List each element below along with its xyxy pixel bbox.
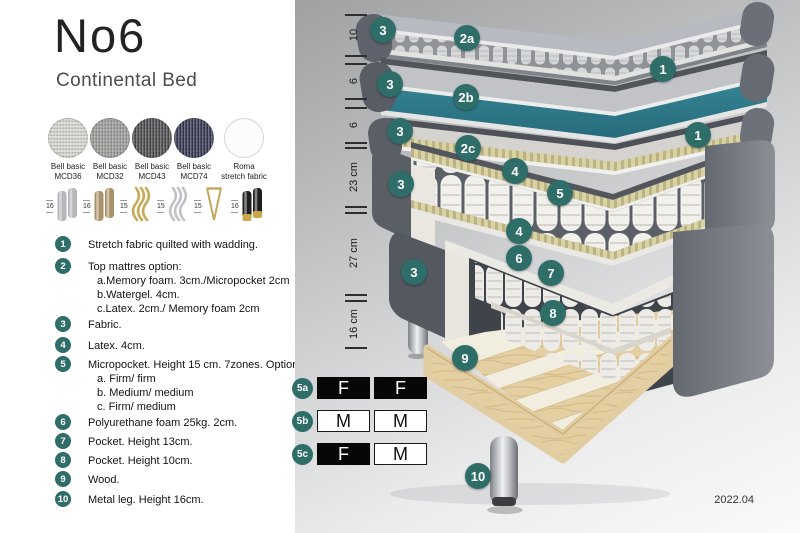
legend-item-number: 3 [55, 316, 71, 332]
legend-item: 2Top mattres option:a.Memory foam. 3cm./… [55, 258, 290, 316]
ruler-segment-label: 10 [348, 28, 360, 40]
firmness-row-badge: 5a [292, 378, 313, 399]
legend-item-text: Wood. [88, 471, 120, 487]
legend-sub-item: c.Latex. 2cm./ Memory foam 2cm [97, 302, 290, 316]
diagram-badge: 2c [455, 135, 481, 161]
info-panel: No6 Continental Bed Bell basicMCD36Bell … [0, 0, 295, 533]
legend-item-text: Polyurethane foam 25kg. 2cm. [88, 414, 237, 430]
ruler-tick [345, 63, 367, 65]
legend-item-title: Wood. [88, 473, 120, 487]
firmness-row: 5aFF [292, 377, 427, 399]
legend-item-title: Polyurethane foam 25kg. 2cm. [88, 416, 237, 430]
legend-item: 10Metal leg. Height 16cm. [55, 491, 204, 507]
firmness-cell: M [374, 443, 427, 465]
legend-item: 5Micropocket. Height 15 cm. 7zones. Opti… [55, 356, 301, 414]
ruler-tick [345, 55, 367, 57]
ruler-tick [345, 294, 367, 296]
legend-item: 1Stretch fabric quilted with wadding. [55, 236, 258, 252]
diagram-badge: 2a [454, 25, 480, 51]
ruler-tick [345, 347, 367, 349]
version-label: 2022.04 [714, 494, 754, 506]
firmness-row-badge: 5c [292, 444, 313, 465]
ruler-tick [345, 107, 367, 109]
diagram-badge: 6 [506, 245, 532, 271]
firmness-cell: F [374, 377, 427, 399]
diagram-badge: 3 [388, 171, 414, 197]
legend-item-number: 2 [55, 258, 71, 274]
legend-item-number: 4 [55, 337, 71, 353]
diagram-badge: 2b [453, 84, 479, 110]
legend-item-number: 6 [55, 414, 71, 430]
legend-item-title: Fabric. [88, 318, 122, 332]
box-spring [389, 224, 774, 505]
firmness-cell: F [317, 443, 370, 465]
legend-sub-item: a.Memory foam. 3cm./Micropocket 2cm [97, 274, 290, 288]
diagram-badge: 3 [387, 118, 413, 144]
legend-item-number: 9 [55, 471, 71, 487]
ruler-tick [345, 300, 367, 302]
ruler-tick [345, 98, 367, 100]
legend-item-title: Latex. 4cm. [88, 339, 145, 353]
legend-item-number: 1 [55, 236, 71, 252]
ruler-segment-label: 16 cm [348, 309, 360, 339]
ruler-segment-label: 23 cm [348, 162, 360, 192]
legend-item-text: Micropocket. Height 15 cm. 7zones. Optio… [88, 356, 301, 414]
legend-item: 9Wood. [55, 471, 120, 487]
legend-item: 7Pocket. Height 13cm. [55, 433, 193, 449]
diagram-badge: 5 [547, 180, 573, 206]
legend-item-number: 8 [55, 452, 71, 468]
legend-sub-item: c. Firm/ medium [97, 400, 301, 414]
legend-item-number: 7 [55, 433, 71, 449]
ruler-tick [345, 206, 367, 208]
legend-item: 4Latex. 4cm. [55, 337, 145, 353]
ruler-tick [345, 142, 367, 144]
diagram-badge: 4 [506, 218, 532, 244]
legend-item: 8Pocket. Height 10cm. [55, 452, 193, 468]
diagram-badge: 1 [685, 122, 711, 148]
legend-item-text: Metal leg. Height 16cm. [88, 491, 204, 507]
ruler-segment-label: 6 [348, 121, 360, 127]
legend-sub-item: a. Firm/ firm [97, 372, 301, 386]
firmness-cell: M [317, 410, 370, 432]
page: { "header": { "title": "No6", "subtitle"… [0, 0, 800, 533]
legend-item-text: Pocket. Height 13cm. [88, 433, 193, 449]
firmness-cell: F [317, 377, 370, 399]
legend-list: 1Stretch fabric quilted with wadding.2To… [0, 0, 295, 533]
legend-item: 3Fabric. [55, 316, 122, 332]
firmness-row-badge: 5b [292, 411, 313, 432]
legend-item-title: Metal leg. Height 16cm. [88, 493, 204, 507]
ruler-tick [345, 147, 367, 149]
legend-item-title: Micropocket. Height 15 cm. 7zones. Optio… [88, 358, 301, 372]
legend-item-title: Pocket. Height 13cm. [88, 435, 193, 449]
diagram-badge: 7 [538, 260, 564, 286]
legend-item-text: Stretch fabric quilted with wadding. [88, 236, 258, 252]
legend-item-text: Latex. 4cm. [88, 337, 145, 353]
ruler-tick [345, 14, 367, 16]
diagram-badge: 4 [502, 158, 528, 184]
legend-sub-item: b. Medium/ medium [97, 386, 301, 400]
diagram-badge: 10 [465, 463, 491, 489]
diagram-badge: 3 [370, 17, 396, 43]
diagram-badge: 8 [540, 300, 566, 326]
firmness-cell: M [374, 410, 427, 432]
legend-item-text: Fabric. [88, 316, 122, 332]
legend-item-text: Pocket. Height 10cm. [88, 452, 193, 468]
legend-item-number: 5 [55, 356, 71, 372]
legend-item-title: Pocket. Height 10cm. [88, 454, 193, 468]
diagram-badge: 1 [650, 56, 676, 82]
diagram-badge: 3 [401, 259, 427, 285]
diagram-badge: 3 [377, 71, 403, 97]
legend-item-title: Stretch fabric quilted with wadding. [88, 238, 258, 252]
legend-item: 6Polyurethane foam 25kg. 2cm. [55, 414, 237, 430]
legend-item-number: 10 [55, 491, 71, 507]
ruler-segment-label: 27 cm [348, 238, 360, 268]
legend-item-text: Top mattres option:a.Memory foam. 3cm./M… [88, 258, 290, 316]
diagram-badge: 9 [452, 345, 478, 371]
firmness-row: 5cFM [292, 443, 427, 465]
firmness-row: 5bMM [292, 410, 427, 432]
bed-diagram: 106623 cm27 cm16 cm 32a132b132c435463789… [295, 0, 800, 533]
ruler-segment-label: 6 [348, 77, 360, 83]
legend-item-title: Top mattres option: [88, 260, 290, 274]
legend-sub-item: b.Watergel. 4cm. [97, 288, 290, 302]
ruler-tick [345, 212, 367, 214]
